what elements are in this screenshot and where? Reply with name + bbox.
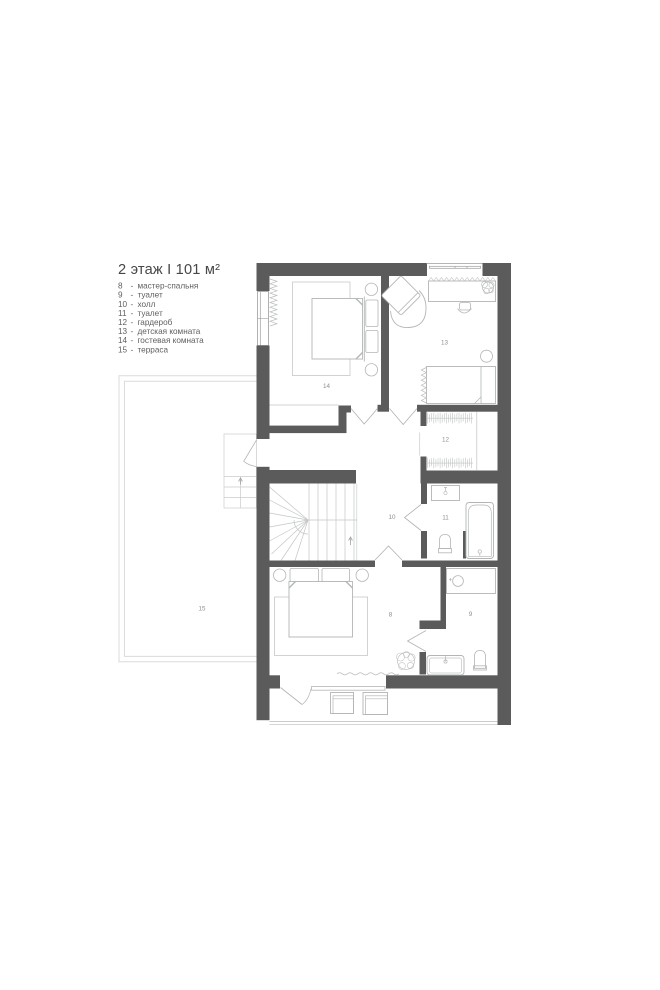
svg-text:14: 14 [323,383,331,390]
svg-text:9: 9 [118,291,123,300]
svg-text:гардероб: гардероб [138,318,173,327]
svg-text:10: 10 [118,300,128,309]
svg-text:8: 8 [118,282,123,291]
svg-text:терраса: терраса [138,345,169,354]
svg-text:10: 10 [388,514,396,521]
svg-text:15: 15 [118,345,128,354]
svg-text:холл: холл [138,300,156,309]
svg-text:9: 9 [469,611,473,618]
svg-text:-: - [131,327,134,336]
svg-text:туалет: туалет [138,291,163,300]
svg-text:детская комната: детская комната [138,327,201,336]
svg-text:8: 8 [389,612,393,619]
svg-text:11: 11 [118,309,127,318]
svg-text:11: 11 [442,515,449,522]
svg-text:гостевая комната: гостевая комната [138,336,205,345]
svg-text:-: - [131,318,134,327]
svg-text:-: - [131,345,134,354]
svg-text:12: 12 [442,437,450,444]
svg-text:-: - [131,291,134,300]
svg-text:-: - [131,309,134,318]
svg-text:-: - [131,282,134,291]
svg-text:12: 12 [118,318,128,327]
svg-text:-: - [131,300,134,309]
svg-text:13: 13 [441,340,449,347]
svg-text:туалет: туалет [138,309,163,318]
svg-text:15: 15 [198,606,206,613]
svg-text:-: - [131,336,134,345]
svg-text:14: 14 [118,336,128,345]
svg-text:2 этаж I 101 м²: 2 этаж I 101 м² [118,262,220,278]
svg-text:мастер-спальня: мастер-спальня [138,282,199,291]
svg-text:13: 13 [118,327,128,336]
